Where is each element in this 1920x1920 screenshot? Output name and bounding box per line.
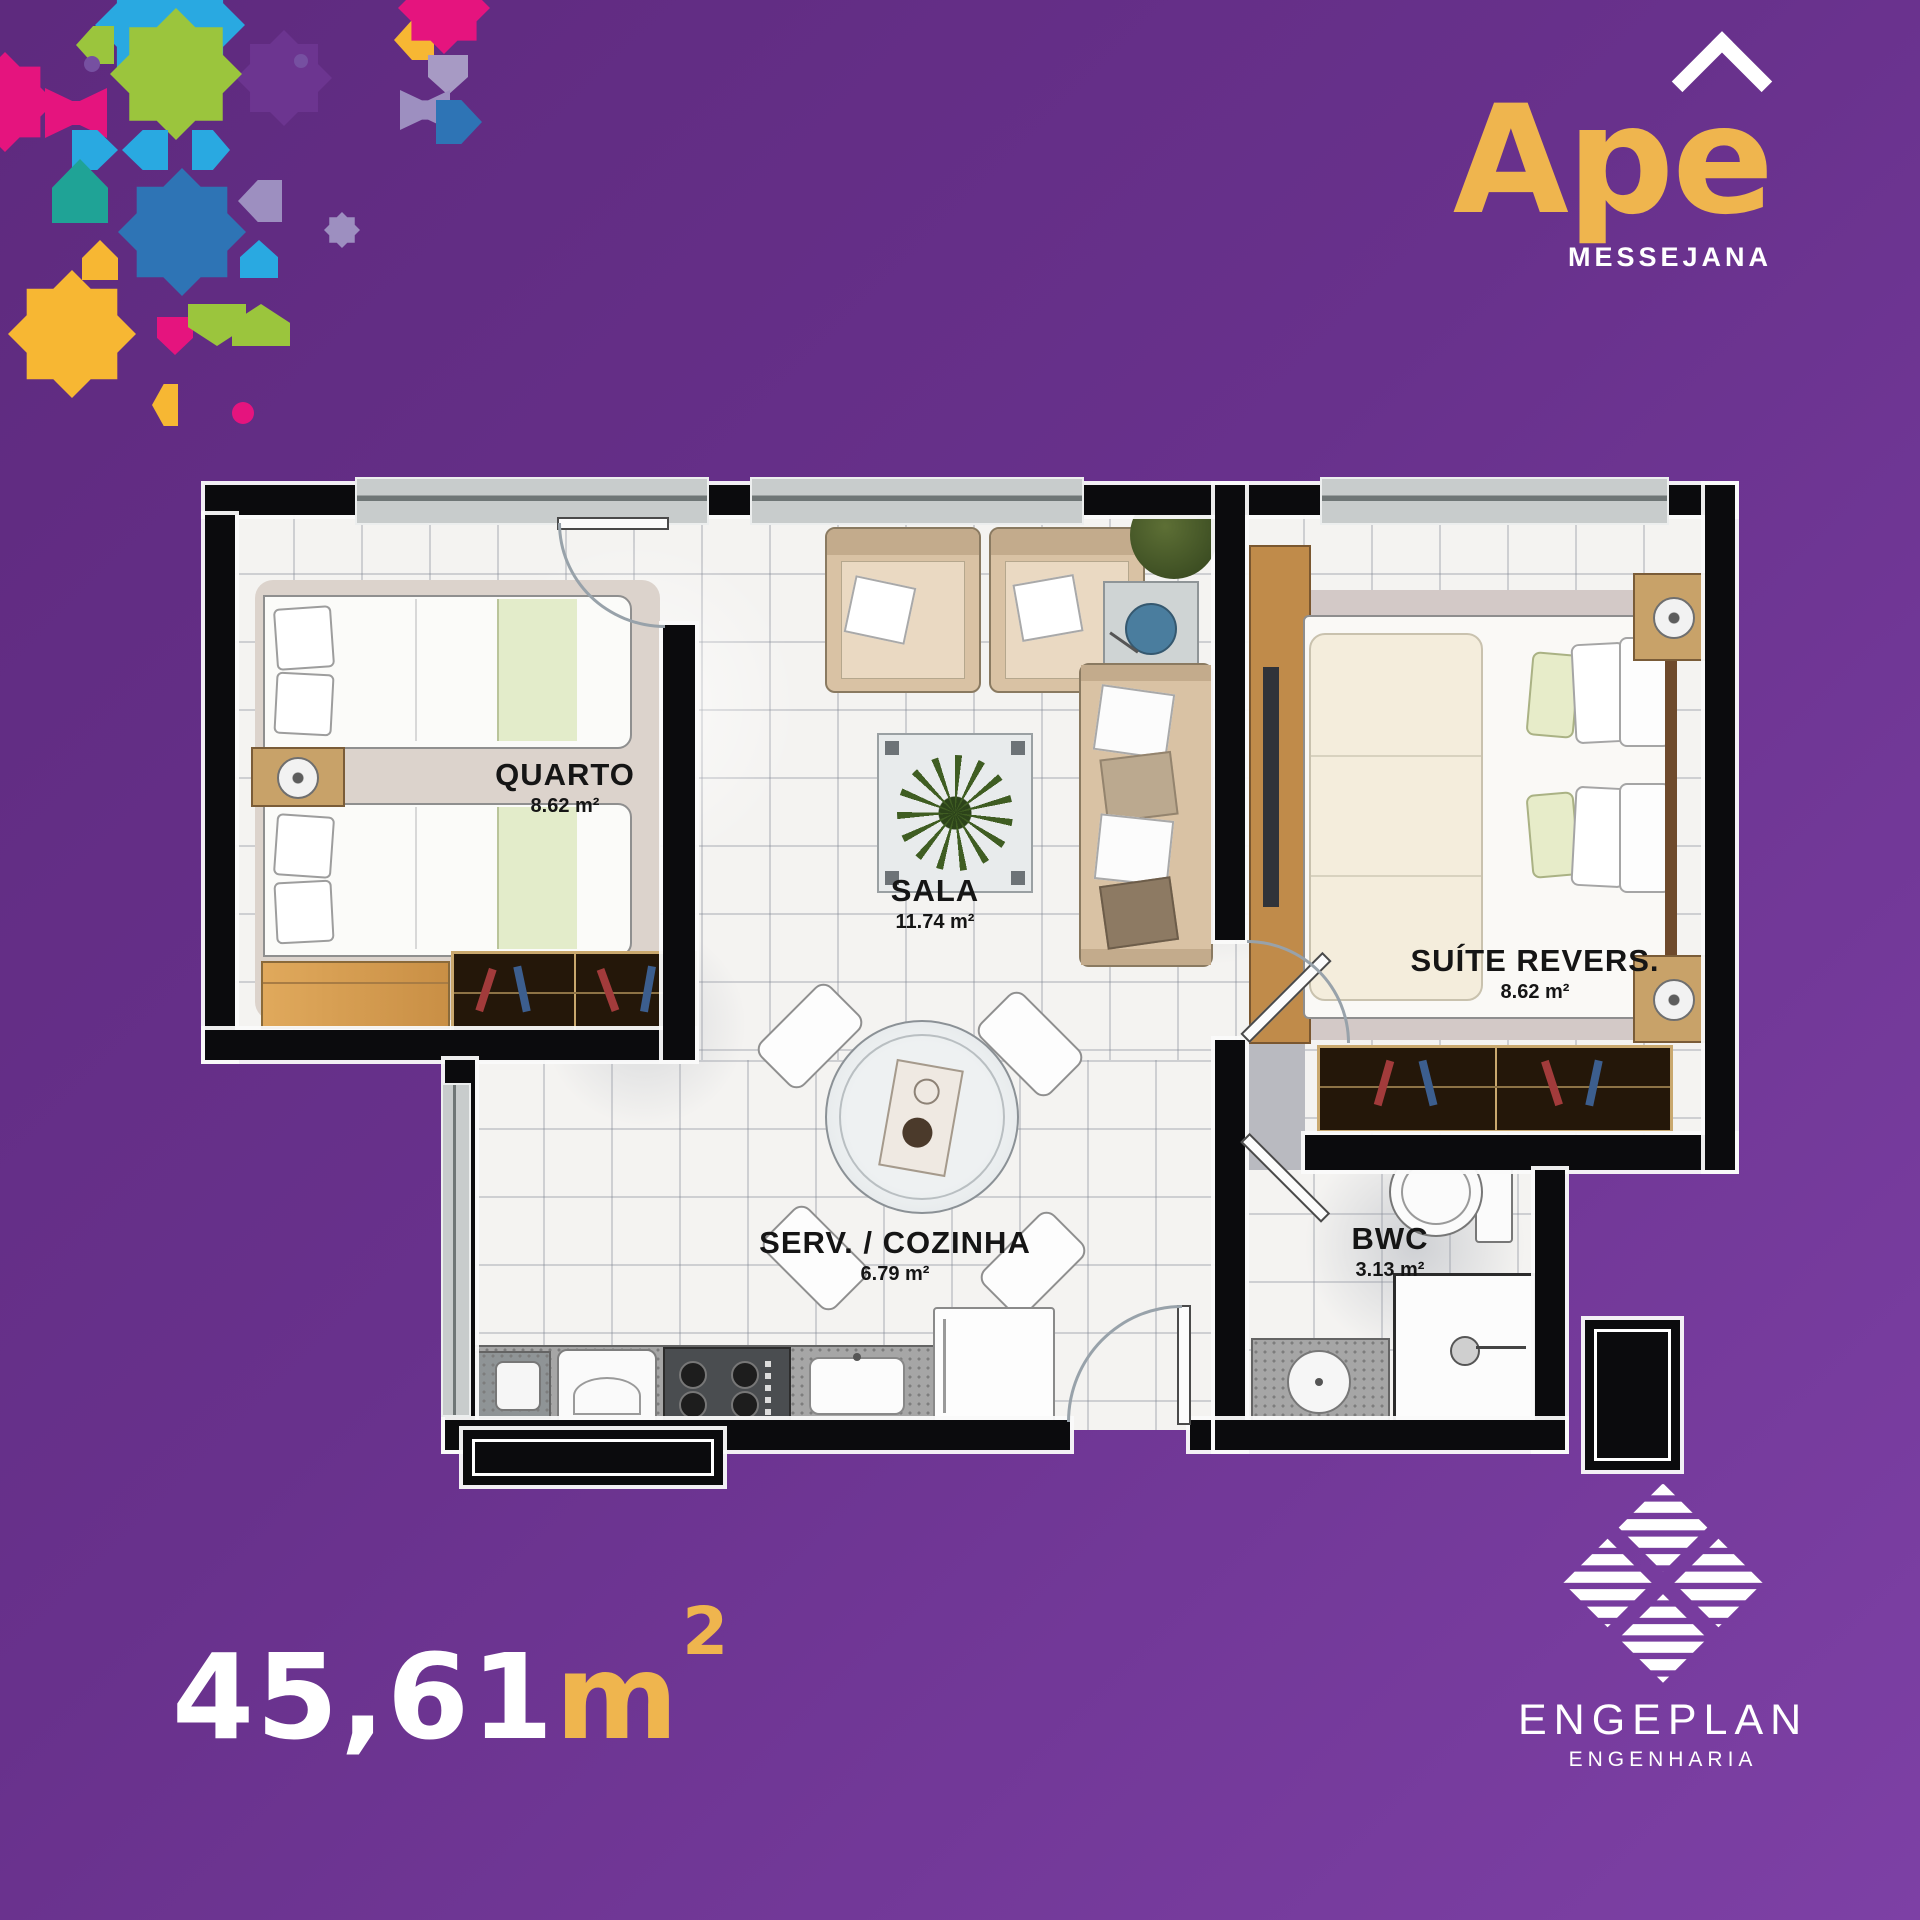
armchair-back [991,529,1143,555]
wardrobe-divider [1495,1048,1497,1130]
mosaic-dot [232,402,254,424]
clothes-item [1374,1060,1394,1106]
flyer-canvas: Ape MESSEJANA [0,0,1920,1920]
pillow [273,672,334,737]
armchair-back [827,529,979,555]
bwc-basin [1287,1350,1351,1414]
mosaic-star [118,168,246,296]
wardrobe-divider [574,954,576,1036]
room-label-quarto: QUARTO 8.62 m² [415,757,715,818]
mosaic-fragment [157,317,193,355]
stove [663,1347,791,1425]
clothes-item [1541,1060,1563,1106]
total-area-unit: m [555,1628,680,1766]
room-name: SERV. / COZINHA [715,1225,1075,1261]
wall-quarto-bottom [205,1030,695,1060]
faucet [853,1353,861,1361]
room-area: 3.13 m² [1280,1259,1500,1282]
room-area: 8.62 m² [415,795,715,818]
floor-plan: QUARTO 8.62 m² SALA 11.74 m² SUÍTE REVER… [205,485,1735,1485]
quarto-wardrobe [451,951,697,1039]
pillow [273,880,334,945]
service-shaft-box [463,1430,723,1485]
nightstand [251,747,345,807]
stove-knobs [765,1361,771,1415]
room-label-sala: SALA 11.74 m² [785,873,1085,934]
plant-starburst [897,755,1013,871]
wall-suite-bottom [1305,1135,1735,1170]
sofa-cushion [1094,813,1174,886]
window-sala [750,477,1084,525]
clothes-item [1585,1060,1602,1107]
total-area-value: 45,61 [172,1628,555,1766]
wall-bwc-right [1535,1170,1565,1450]
coffee-table [877,733,1033,893]
window-suite [1320,477,1669,525]
ape-logo: Ape MESSEJANA [1392,86,1778,273]
room-label-suite: SUÍTE REVERS. 8.62 m² [1345,943,1725,1004]
ape-logo-accented-letter: e [1672,86,1772,236]
mosaic-fragment [238,180,282,222]
sofa-arm [1081,665,1211,681]
mosaic-fragment [152,384,178,426]
mosaic-star [110,8,242,140]
pillow [1012,574,1083,642]
clothes-item [640,966,656,1013]
table-lamp [277,757,319,799]
kitchen-sink [809,1357,905,1415]
nightstand [1633,573,1713,661]
suite-wardrobe [1317,1045,1673,1133]
wall-quarto-right [663,625,695,1060]
stove-burner [679,1361,707,1389]
table-leg [1011,741,1025,755]
mosaic-fragment [52,159,108,223]
engeplan-diamond-icon [1558,1478,1768,1688]
pillow [844,575,917,645]
wall-left [205,515,235,1060]
sofa-cushion [1099,876,1179,949]
pillow [273,813,335,879]
wall-suite-right [1705,485,1735,1170]
ape-logo-base: Ap [1453,74,1672,248]
washer-door [573,1377,641,1415]
mosaic-dot [84,56,100,72]
shaft-inner [472,1439,714,1476]
stove-burner [679,1391,707,1419]
shower-drain [1450,1336,1480,1366]
bed-single-2 [263,803,632,957]
stove-burner [731,1391,759,1419]
room-label-bwc: BWC 3.13 m² [1280,1221,1500,1282]
wardrobe-shelf-line [1320,1086,1670,1088]
wall-bwc-bottom [1215,1420,1565,1450]
clothes-item [513,966,530,1013]
washer [557,1349,657,1423]
shelf-line [263,982,448,984]
mosaic-fragment [240,240,278,278]
mosaic-fragment [192,130,230,170]
tank-basin [495,1361,541,1411]
quarto-shelf [261,961,450,1029]
mosaic-fragment [428,55,468,95]
cookies [900,1115,935,1150]
clothes-item [1419,1060,1438,1107]
kitchen-counter [455,1345,937,1427]
total-area: 45,61m2 [172,1628,730,1766]
tv-screen [1263,667,1279,907]
shower-box [1393,1273,1537,1427]
stove-burner [731,1361,759,1389]
wall-mid-upper [1215,485,1245,940]
cup [912,1077,942,1107]
room-name: BWC [1280,1221,1500,1257]
shaft-inner [1594,1329,1671,1461]
clothes-item [475,968,496,1012]
sheet-fold [415,807,417,949]
total-area-exponent: 2 [682,1593,730,1670]
wardrobe-shelf-line [454,992,694,994]
room-area: 11.74 m² [785,911,1085,934]
sheet-fold [415,599,417,741]
dining-table [825,1020,1019,1214]
room-name: QUARTO [415,757,715,793]
mosaic-star [324,212,360,248]
duvet-fold [1311,875,1481,877]
room-area: 6.79 m² [715,1263,1075,1286]
fridge [933,1307,1055,1425]
pillow [273,605,335,671]
room-name: SUÍTE REVERS. [1345,943,1725,979]
sofa-arm [1081,949,1211,965]
mosaic-fragment [436,100,482,144]
wall-mid-lower [1215,1040,1245,1450]
basin-drain [1315,1378,1323,1386]
mosaic-dot [294,54,308,68]
shower-arm [1476,1346,1526,1349]
table-leg [885,741,899,755]
builder-name: ENGEPLAN [1518,1696,1808,1745]
room-name: SALA [785,873,1085,909]
sofa-cushion [1099,751,1178,823]
builder-subtitle: ENGENHARIA [1518,1748,1808,1772]
mosaic-star [236,30,332,126]
room-area: 8.62 m² [1345,981,1725,1004]
table-lamp [1653,597,1695,639]
pillow [1619,783,1671,893]
clothes-item [597,968,620,1012]
blanket [497,807,577,949]
duvet-fold [1311,755,1481,757]
room-label-cozinha: SERV. / COZINHA 6.79 m² [715,1225,1075,1286]
engeplan-logo: ENGEPLAN ENGENHARIA [1518,1478,1808,1772]
armchair [825,527,981,693]
duct-shaft-box [1585,1320,1680,1470]
sofa-cushion [1093,684,1175,760]
mosaic-star [8,270,136,398]
bwc-sink-counter [1251,1338,1390,1424]
mosaic-fragment [82,240,118,280]
bed-single-1 [263,595,632,749]
blanket [497,599,577,741]
fridge-handle [943,1319,946,1413]
sofa [1079,663,1213,967]
ape-logo-wordmark: Ape [1392,86,1772,236]
window-kitchen-side [441,1083,471,1417]
mosaic-fragment [122,130,168,170]
